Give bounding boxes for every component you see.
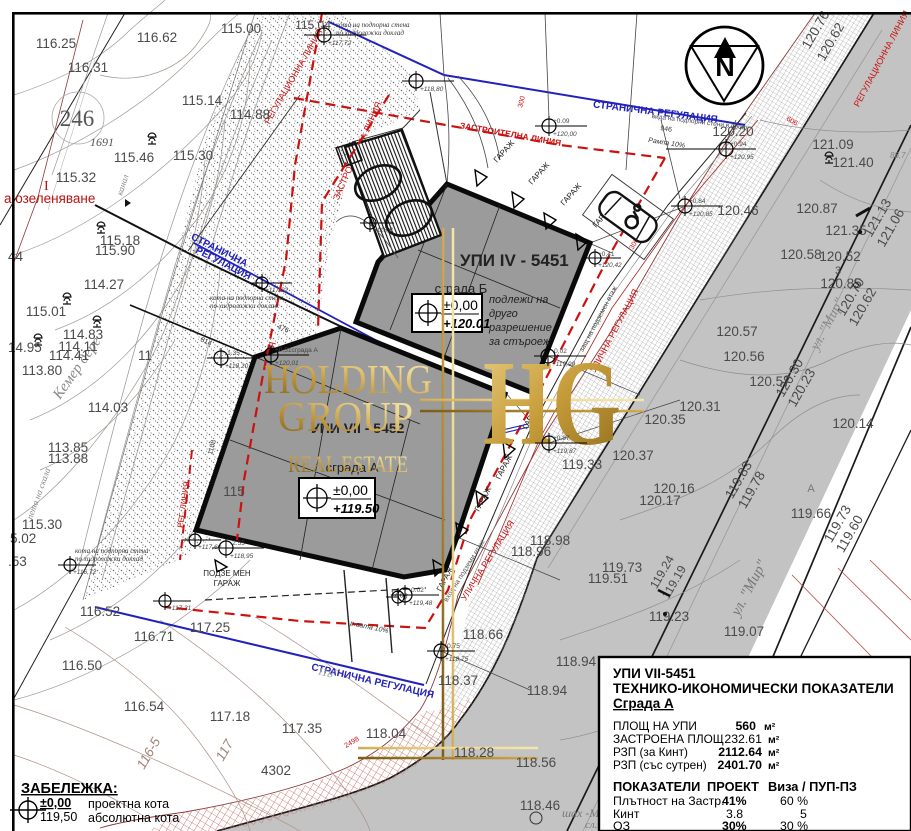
svg-text:+119,99: +119,99 bbox=[552, 361, 576, 368]
svg-text:+120,42: +120,42 bbox=[598, 262, 622, 269]
svg-text:Виза / ПУП-ПЗ: Виза / ПУП-ПЗ bbox=[768, 779, 857, 794]
svg-text:44: 44 bbox=[8, 249, 24, 264]
svg-text:114.88: 114.88 bbox=[230, 107, 270, 122]
svg-text:±0,00: ±0,00 bbox=[40, 796, 71, 810]
svg-text:120.46: 120.46 bbox=[717, 203, 758, 218]
svg-text:118.96: 118.96 bbox=[511, 544, 551, 559]
svg-text:абсолютна кота: абсолютна кота bbox=[88, 811, 179, 825]
svg-text:120.87: 120.87 bbox=[796, 201, 837, 216]
svg-text:м²: м² bbox=[768, 734, 780, 746]
svg-text:GROUP: GROUP bbox=[278, 395, 413, 441]
svg-text:+0,41: +0,41 bbox=[598, 251, 615, 258]
svg-text:116.54: 116.54 bbox=[124, 699, 165, 714]
svg-text:N: N bbox=[715, 52, 735, 82]
svg-text:118.94: 118.94 bbox=[556, 654, 597, 669]
svg-text:120.37: 120.37 bbox=[612, 448, 653, 463]
svg-text:117.25: 117.25 bbox=[190, 620, 230, 635]
svg-text:ГАРАЖ: ГАРАЖ bbox=[214, 579, 241, 588]
svg-text:115.18: 115.18 bbox=[100, 233, 140, 248]
svg-text:116.25: 116.25 bbox=[36, 36, 76, 51]
svg-text:114.41: 114.41 bbox=[49, 348, 89, 363]
svg-text:ЗАБЕЛЕЖКА:: ЗАБЕЛЕЖКА: bbox=[21, 781, 118, 797]
svg-text:+120,00: +120,00 bbox=[553, 131, 577, 138]
svg-text:1691: 1691 bbox=[90, 135, 114, 149]
svg-text:116.52: 116.52 bbox=[80, 604, 120, 619]
svg-text:+118,20: +118,20 bbox=[225, 363, 249, 370]
svg-text:+120,95: +120,95 bbox=[730, 154, 754, 161]
svg-text:118.04: 118.04 bbox=[366, 726, 407, 741]
svg-text:115.14: 115.14 bbox=[182, 93, 223, 108]
svg-text:УПИ IV - 5451: УПИ IV - 5451 bbox=[460, 251, 569, 270]
svg-text:ПРОЕКТ: ПРОЕКТ bbox=[707, 779, 759, 794]
svg-text:+119,87: +119,87 bbox=[553, 448, 577, 455]
svg-text:+0.94: +0.94 bbox=[730, 141, 747, 148]
svg-text:113.88: 113.88 bbox=[48, 451, 88, 466]
svg-text:115.00: 115.00 bbox=[221, 21, 261, 36]
svg-text:118.37: 118.37 bbox=[438, 673, 478, 688]
svg-text:119.51: 119.51 bbox=[588, 571, 628, 586]
svg-text:.53: .53 bbox=[8, 554, 27, 569]
svg-text:560: 560 bbox=[735, 719, 756, 733]
svg-text:118.66: 118.66 bbox=[463, 627, 503, 642]
svg-text:±0,00: ±0,00 bbox=[443, 297, 478, 313]
svg-text:+118,80: +118,80 bbox=[420, 86, 444, 93]
svg-text:119,50: 119,50 bbox=[40, 810, 77, 824]
svg-text:ПЛОЩ НА УПИ: ПЛОЩ НА УПИ bbox=[613, 719, 697, 733]
svg-text:-1.35: -1.35 bbox=[225, 350, 240, 357]
svg-text:+120.01: +120.01 bbox=[443, 316, 490, 331]
svg-text:+117,72: +117,72 bbox=[328, 40, 352, 47]
svg-text:232.61: 232.61 bbox=[724, 732, 762, 746]
svg-text:ПОКАЗАТЕЛИ: ПОКАЗАТЕЛИ bbox=[613, 779, 700, 794]
svg-text:по хидроложки доклад: по хидроложки доклад bbox=[210, 302, 278, 310]
svg-text:117.35: 117.35 bbox=[282, 721, 322, 736]
svg-text:I: I bbox=[44, 179, 49, 194]
svg-text:ТЕХНИКО-ИКОНОМИЧЕСКИ ПОКАЗАТЕЛ: ТЕХНИКО-ИКОНОМИЧЕСКИ ПОКАЗАТЕЛИ bbox=[613, 681, 894, 696]
svg-text:60 %: 60 % bbox=[780, 794, 808, 808]
svg-text:120.58: 120.58 bbox=[780, 247, 821, 262]
svg-text:А: А bbox=[807, 483, 815, 495]
svg-text:по хидроложки доклад: по хидроложки доклад bbox=[336, 29, 404, 37]
svg-text:проектна кота: проектна кота bbox=[88, 797, 169, 811]
svg-text:а озеленяване: а озеленяване bbox=[4, 191, 95, 206]
svg-text:114.03: 114.03 bbox=[88, 400, 128, 415]
svg-text:88,7: 88,7 bbox=[890, 151, 906, 160]
svg-text:120.14: 120.14 bbox=[832, 416, 874, 431]
svg-text:115.46: 115.46 bbox=[114, 150, 154, 165]
svg-text:120.20: 120.20 bbox=[712, 124, 753, 139]
svg-text:246: 246 bbox=[60, 106, 95, 131]
svg-text:УПИ VII-5451: УПИ VII-5451 bbox=[613, 666, 696, 681]
svg-text:кота на подпорна стена: кота на подпорна стена bbox=[75, 547, 149, 555]
svg-text:119.33: 119.33 bbox=[562, 457, 602, 472]
svg-text:м²: м² bbox=[768, 760, 780, 772]
svg-text:РЗП (със сутрен): РЗП (със сутрен) bbox=[613, 758, 707, 772]
svg-text:м²: м² bbox=[764, 721, 776, 733]
svg-text:+0,51сграда А: +0,51сграда А bbox=[275, 347, 319, 354]
svg-text:120.52: 120.52 bbox=[819, 249, 860, 264]
svg-text:116.50: 116.50 bbox=[62, 658, 102, 673]
svg-text:+118,8: +118,8 bbox=[373, 227, 393, 234]
svg-text:116.62: 116.62 bbox=[137, 30, 177, 45]
svg-text:кота на подпорна стена: кота на подпорна стена bbox=[336, 21, 410, 29]
svg-text:+119.50: +119.50 bbox=[333, 501, 380, 516]
svg-text:115.30: 115.30 bbox=[22, 517, 62, 532]
svg-text:+119,48: +119,48 bbox=[409, 600, 433, 607]
svg-text:30%: 30% bbox=[722, 819, 747, 831]
svg-text:118.56: 118.56 bbox=[516, 755, 556, 770]
svg-text:117.18: 117.18 bbox=[210, 709, 250, 724]
svg-text:118.28: 118.28 bbox=[454, 745, 494, 760]
svg-text:+120,01: +120,01 bbox=[275, 360, 299, 367]
svg-text:41%: 41% bbox=[722, 794, 747, 808]
svg-text:-0,02: -0,02 bbox=[552, 348, 567, 355]
svg-text:120.57: 120.57 bbox=[716, 324, 757, 339]
svg-text:+117,22: +117,22 bbox=[265, 287, 289, 294]
svg-text:по хидроложки доклад: по хидроложки доклад bbox=[75, 555, 143, 563]
svg-text:30 %: 30 % bbox=[780, 819, 808, 831]
svg-text:разрешение: разрешение bbox=[488, 322, 552, 334]
svg-text:Плътност на Застр.: Плътност на Застр. bbox=[613, 794, 725, 808]
svg-text:REAL ESTATE: REAL ESTATE bbox=[288, 452, 408, 477]
svg-text:115.32: 115.32 bbox=[56, 170, 96, 185]
svg-text:119.23: 119.23 bbox=[649, 609, 689, 624]
svg-text:119.07: 119.07 bbox=[724, 624, 764, 639]
svg-text:+116,72: +116,72 bbox=[73, 569, 97, 576]
svg-text:+120,85: +120,85 bbox=[689, 211, 713, 218]
svg-text:ЗАСТРОЕНА ПЛОЩ: ЗАСТРОЕНА ПЛОЩ bbox=[613, 732, 724, 746]
svg-text:-0.75: -0.75 bbox=[445, 643, 460, 650]
svg-text:115.01: 115.01 bbox=[26, 304, 66, 319]
svg-text:±0,00: ±0,00 bbox=[333, 482, 368, 498]
svg-text:м²: м² bbox=[768, 747, 780, 759]
svg-text:116.71: 116.71 bbox=[134, 629, 174, 644]
svg-text:2112.64: 2112.64 bbox=[718, 745, 762, 759]
svg-text:+118,75: +118,75 bbox=[445, 656, 469, 663]
svg-text:+117,31: +117,31 bbox=[168, 605, 192, 612]
svg-text:+0.09: +0.09 bbox=[553, 118, 570, 125]
svg-text:ПОДЗЕ МЕН: ПОДЗЕ МЕН bbox=[203, 569, 251, 578]
svg-text:+0.84: +0.84 bbox=[689, 198, 706, 205]
svg-text:115: 115 bbox=[223, 484, 245, 499]
svg-text:120.17: 120.17 bbox=[639, 493, 680, 508]
svg-text:113.80: 113.80 bbox=[22, 363, 62, 378]
svg-text:+118,95: +118,95 bbox=[230, 553, 254, 560]
svg-text:120.35: 120.35 bbox=[644, 412, 685, 427]
svg-text:4302: 4302 bbox=[261, 763, 291, 778]
svg-text:121.09: 121.09 bbox=[812, 137, 853, 152]
svg-text:119.66: 119.66 bbox=[791, 506, 831, 521]
svg-text:ОЗ: ОЗ bbox=[613, 819, 630, 831]
svg-text:РЗП (за Кинт): РЗП (за Кинт) bbox=[613, 745, 688, 759]
svg-text:115.30: 115.30 bbox=[173, 148, 213, 163]
svg-text:114.27: 114.27 bbox=[84, 277, 124, 292]
svg-text:+117,60: +117,60 bbox=[198, 544, 222, 551]
svg-text:-2.55: -2.55 bbox=[230, 540, 245, 547]
svg-text:118.94: 118.94 bbox=[527, 683, 568, 698]
svg-text:116.31: 116.31 bbox=[68, 60, 108, 75]
svg-text:2401.70: 2401.70 bbox=[718, 758, 763, 772]
svg-text:115.04: 115.04 bbox=[295, 18, 331, 32]
svg-text:121.40: 121.40 bbox=[832, 155, 873, 170]
svg-text:+0.87: +0.87 bbox=[553, 435, 570, 442]
svg-text:118.46: 118.46 bbox=[520, 798, 560, 813]
svg-text:подлежи на: подлежи на bbox=[489, 294, 548, 306]
svg-text:-0.02: -0.02 bbox=[409, 587, 424, 594]
svg-text:Сграда А: Сграда А bbox=[613, 696, 674, 711]
svg-text:120.56: 120.56 bbox=[723, 349, 764, 364]
svg-text:друго: друго bbox=[489, 308, 518, 320]
svg-text:кота на подпорна стена: кота на подпорна стена bbox=[210, 294, 284, 302]
svg-text:11: 11 bbox=[138, 348, 152, 363]
